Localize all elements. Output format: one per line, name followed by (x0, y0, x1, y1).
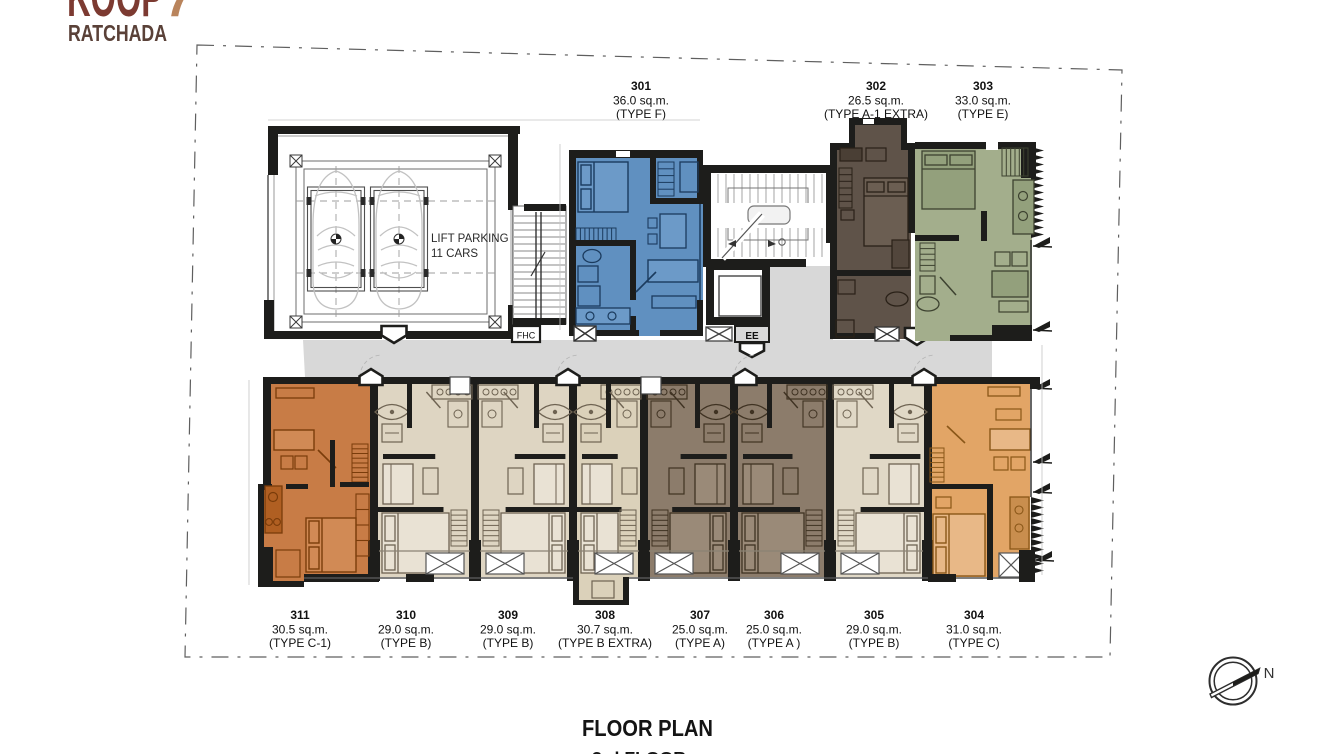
svg-text:FHC: FHC (517, 331, 536, 341)
svg-text:29.0 sq.m.: 29.0 sq.m. (846, 623, 902, 637)
svg-text:29.0 sq.m.: 29.0 sq.m. (480, 623, 536, 637)
svg-text:3rd FLOOR: 3rd FLOOR (592, 749, 686, 754)
svg-text:EE: EE (745, 331, 759, 342)
svg-text:(TYPE A-1 EXTRA): (TYPE A-1 EXTRA) (824, 107, 928, 121)
svg-text:310: 310 (396, 608, 416, 622)
svg-text:305: 305 (864, 608, 884, 622)
svg-text:33.0 sq.m.: 33.0 sq.m. (955, 94, 1011, 108)
svg-text:309: 309 (498, 608, 518, 622)
svg-text:(TYPE B): (TYPE B) (381, 636, 432, 650)
svg-text:31.0 sq.m.: 31.0 sq.m. (946, 623, 1002, 637)
svg-text:(TYPE B): (TYPE B) (483, 636, 534, 650)
svg-text:(TYPE B EXTRA): (TYPE B EXTRA) (558, 636, 652, 650)
svg-text:303: 303 (973, 79, 993, 93)
svg-text:25.0 sq.m.: 25.0 sq.m. (746, 623, 802, 637)
svg-text:30.5 sq.m.: 30.5 sq.m. (272, 623, 328, 637)
svg-text:(TYPE F): (TYPE F) (616, 107, 666, 121)
svg-text:301: 301 (631, 79, 651, 93)
svg-text:N: N (1264, 665, 1275, 682)
svg-text:25.0 sq.m.: 25.0 sq.m. (672, 623, 728, 637)
svg-text:7: 7 (167, 0, 196, 29)
svg-text:302: 302 (866, 79, 886, 93)
svg-text:36.0 sq.m.: 36.0 sq.m. (613, 94, 669, 108)
svg-text:(TYPE B): (TYPE B) (849, 636, 900, 650)
svg-text:FLOOR PLAN: FLOOR PLAN (582, 715, 713, 741)
svg-text:(TYPE E): (TYPE E) (958, 107, 1009, 121)
svg-text:30.7 sq.m.: 30.7 sq.m. (577, 623, 633, 637)
svg-text:304: 304 (964, 608, 984, 622)
svg-text:306: 306 (764, 608, 784, 622)
svg-text:LIFT PARKING: LIFT PARKING (431, 233, 509, 245)
svg-text:(TYPE C-1): (TYPE C-1) (269, 636, 331, 650)
svg-text:RATCHADA: RATCHADA (68, 20, 167, 46)
svg-text:26.5 sq.m.: 26.5 sq.m. (848, 94, 904, 108)
svg-text:311: 311 (290, 608, 310, 622)
svg-text:(TYPE A ): (TYPE A ) (748, 636, 801, 650)
svg-text:11 CARS: 11 CARS (431, 248, 478, 260)
svg-text:(TYPE A): (TYPE A) (675, 636, 725, 650)
svg-text:(TYPE C): (TYPE C) (948, 636, 999, 650)
svg-text:307: 307 (690, 608, 710, 622)
svg-text:308: 308 (595, 608, 615, 622)
svg-text:29.0 sq.m.: 29.0 sq.m. (378, 623, 434, 637)
